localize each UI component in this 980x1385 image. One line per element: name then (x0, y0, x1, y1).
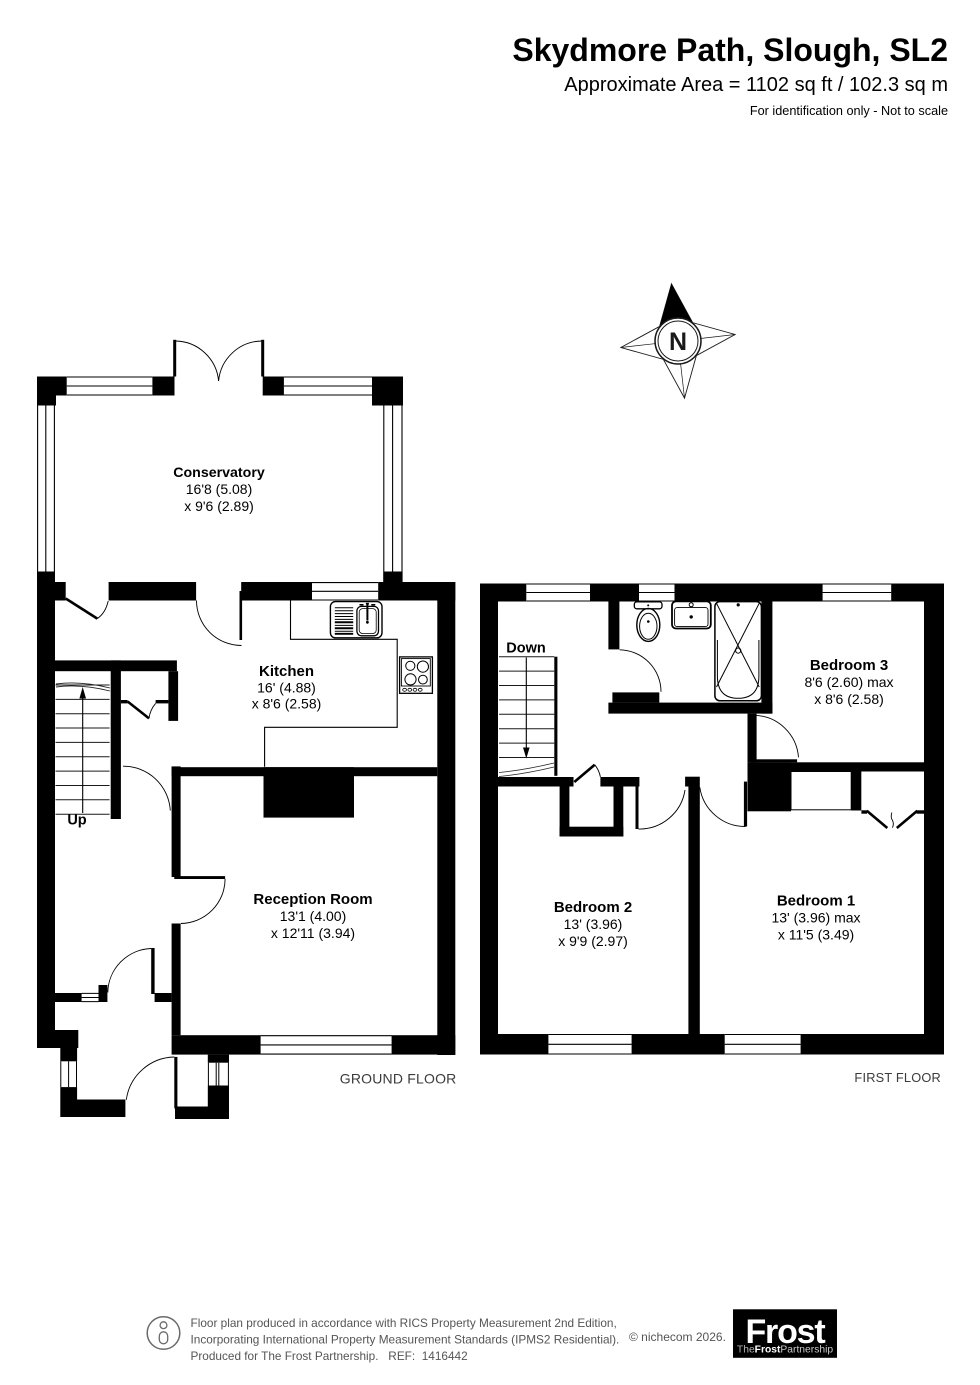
svg-text:N: N (669, 328, 687, 356)
svg-text:Approximate Area = 1102 sq ft: Approximate Area = 1102 sq ft / 102.3 sq… (564, 74, 948, 96)
svg-text:GROUND FLOOR: GROUND FLOOR (340, 1071, 457, 1087)
svg-text:Kitchen: Kitchen (259, 663, 314, 680)
svg-text:TheFrostPartnership: TheFrostPartnership (737, 1345, 833, 1356)
svg-text:Bedroom 1: Bedroom 1 (777, 893, 855, 910)
svg-text:x 9'6 (2.89): x 9'6 (2.89) (184, 498, 254, 514)
svg-text:Reception Room: Reception Room (253, 891, 372, 908)
svg-text:16' (4.88): 16' (4.88) (257, 679, 316, 695)
svg-text:Skydmore Path, Slough, SL2: Skydmore Path, Slough, SL2 (512, 32, 948, 68)
svg-text:x 12'11 (3.94): x 12'11 (3.94) (271, 925, 355, 941)
svg-text:Produced for The Frost Partner: Produced for The Frost Partnership. REF:… (191, 1349, 468, 1363)
svg-text:16'8 (5.08): 16'8 (5.08) (186, 481, 253, 497)
svg-text:13' (3.96): 13' (3.96) (564, 916, 623, 932)
svg-text:FIRST FLOOR: FIRST FLOOR (854, 1070, 941, 1085)
svg-text:13' (3.96) max: 13' (3.96) max (771, 910, 860, 926)
svg-text:Up: Up (67, 813, 86, 829)
svg-text:x 9'9 (2.97): x 9'9 (2.97) (558, 933, 628, 949)
svg-text:Conservatory: Conservatory (173, 465, 265, 481)
svg-text:Bedroom 2: Bedroom 2 (554, 899, 632, 916)
svg-text:x 11'5 (3.49): x 11'5 (3.49) (778, 927, 854, 943)
svg-text:x 8'6 (2.58): x 8'6 (2.58) (814, 691, 884, 707)
svg-text:8'6 (2.60) max: 8'6 (2.60) max (804, 674, 893, 690)
svg-text:x 8'6 (2.58): x 8'6 (2.58) (252, 696, 322, 712)
svg-text:Incorporating International Pr: Incorporating International Property Mea… (191, 1333, 620, 1347)
svg-text:13'1 (4.00): 13'1 (4.00) (280, 908, 347, 924)
svg-text:© nichecom 2026.: © nichecom 2026. (629, 1330, 726, 1344)
svg-text:For identification only - Not: For identification only - Not to scale (750, 104, 948, 118)
svg-text:Floor plan produced in accorda: Floor plan produced in accordance with R… (191, 1316, 617, 1330)
svg-text:Bedroom 3: Bedroom 3 (810, 657, 888, 674)
svg-text:Down: Down (506, 641, 545, 657)
